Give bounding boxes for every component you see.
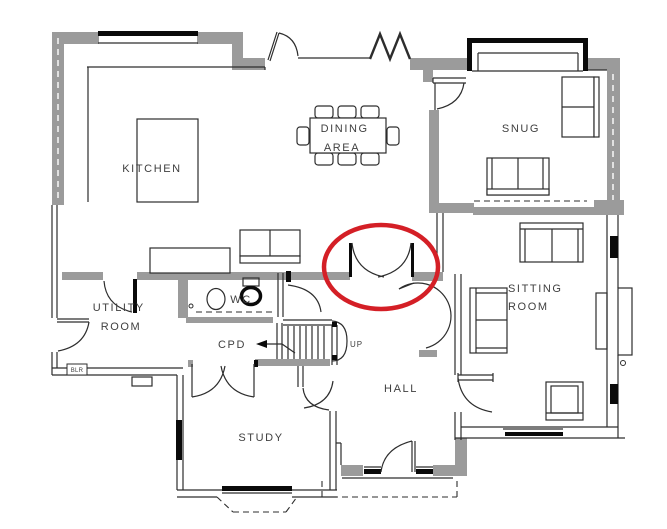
label-utility-line2: ROOM xyxy=(101,321,142,333)
utility-vent xyxy=(132,377,152,386)
study-bay-window xyxy=(222,486,292,491)
sitting-room-east-window-lower xyxy=(610,384,618,404)
front-door-sidelight-right xyxy=(416,469,433,474)
study-bay-outline xyxy=(217,497,297,512)
dining-chair xyxy=(361,153,379,165)
armchair xyxy=(546,382,583,420)
label-sitting-room: SITTING ROOM xyxy=(508,283,567,313)
basin-icon xyxy=(207,289,225,310)
sitting-room-door xyxy=(458,378,492,412)
study-door xyxy=(303,381,333,410)
pipe-symbol-sitting xyxy=(621,361,626,366)
highlighted-double-doors xyxy=(349,243,414,277)
newel-post-bottom xyxy=(332,355,337,360)
label-hall: HALL xyxy=(384,383,418,395)
stair-rail xyxy=(283,320,332,325)
boiler: BLR xyxy=(67,364,87,375)
snug-bay-window-left xyxy=(467,38,472,71)
kitchen-back-door xyxy=(268,32,298,61)
dining-chair xyxy=(387,127,399,145)
study-west-window xyxy=(176,420,182,460)
snug-bay-window-top xyxy=(467,38,588,43)
front-door xyxy=(381,441,415,472)
label-sitting-line1: SITTING xyxy=(508,283,563,295)
sitting-sofa-top xyxy=(520,223,583,262)
fireplace-hearth xyxy=(596,293,607,349)
stairs-up-label: UP xyxy=(350,340,363,349)
label-sitting-line2: ROOM xyxy=(508,301,549,313)
kitchen-island xyxy=(137,119,198,202)
sitting-room-south-window xyxy=(505,432,563,436)
snug-sofa-right xyxy=(562,77,599,137)
staircase: UP xyxy=(256,320,363,361)
highlight-ellipse xyxy=(324,225,438,309)
dining-table-set xyxy=(297,106,399,165)
utility-external-door xyxy=(57,319,89,351)
boiler-label: BLR xyxy=(71,368,84,374)
label-dining-line2: AREA xyxy=(324,142,360,154)
label-study: STUDY xyxy=(238,432,283,444)
floor-plan-canvas: UP xyxy=(0,0,667,529)
snug-sofa-bottom xyxy=(487,158,549,195)
porch-outline xyxy=(322,481,457,497)
cupboard-double-doors xyxy=(192,360,258,397)
bifold-doors xyxy=(370,34,410,59)
kitchen-unit xyxy=(150,248,230,273)
label-wc: WC xyxy=(230,294,252,306)
front-door-sidelight-left xyxy=(364,469,381,474)
snug-door xyxy=(435,83,464,110)
dining-chair xyxy=(315,153,333,165)
kitchen-window xyxy=(98,31,198,36)
snug-bay-window-right xyxy=(583,38,588,71)
label-utility-room: UTILITY ROOM xyxy=(93,302,150,333)
family-room-sofa xyxy=(240,230,300,263)
label-dining-line1: DINING xyxy=(321,123,369,135)
pipe-symbol-wc xyxy=(189,304,193,308)
label-snug: SNUG xyxy=(502,123,540,135)
label-utility-line1: UTILITY xyxy=(93,302,145,314)
dining-chair xyxy=(297,127,309,145)
stair-arrow-head xyxy=(256,340,267,348)
dining-chair xyxy=(361,106,379,118)
stair-direction-arrow xyxy=(265,344,295,353)
newel-post-top xyxy=(332,322,337,327)
sitting-sofa-left xyxy=(470,288,507,353)
dining-chair xyxy=(338,106,356,118)
floor-plan-page: UP xyxy=(0,0,667,529)
stair-treads xyxy=(288,326,324,359)
label-kitchen: KITCHEN xyxy=(122,163,181,175)
sitting-room-east-window-upper xyxy=(610,236,618,258)
label-cpd: CPD xyxy=(218,339,246,351)
dining-chair xyxy=(315,106,333,118)
chimney-breast xyxy=(618,288,632,355)
dining-chair xyxy=(338,153,356,165)
